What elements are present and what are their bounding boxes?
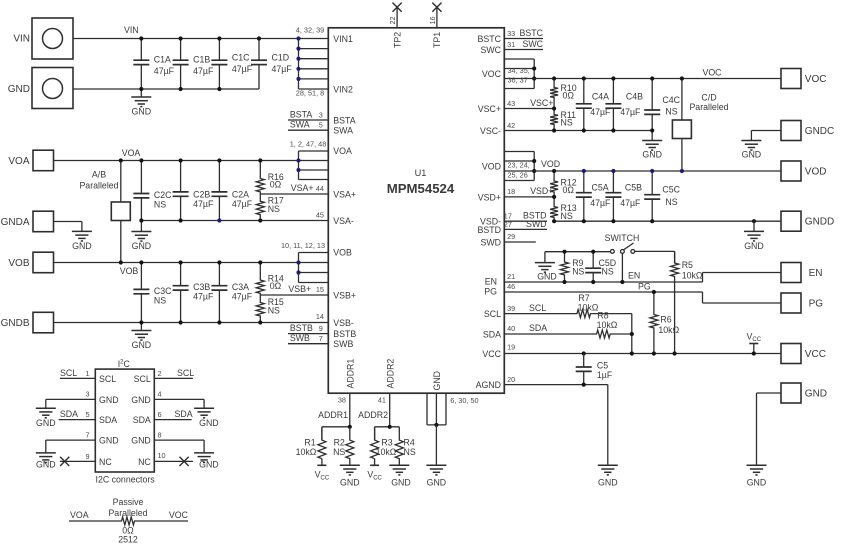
svg-text:16: 16	[428, 16, 437, 24]
svg-text:VOB: VOB	[333, 248, 352, 258]
svg-text:8: 8	[158, 431, 162, 440]
svg-text:C4B: C4B	[626, 92, 643, 102]
svg-text:GND: GND	[132, 340, 152, 350]
svg-text:C5: C5	[597, 360, 608, 370]
svg-text:GND: GND	[747, 478, 767, 488]
svg-text:A/B: A/B	[92, 169, 106, 179]
svg-text:GND: GND	[199, 460, 219, 470]
svg-text:1: 1	[85, 369, 89, 378]
svg-text:GND: GND	[199, 418, 219, 428]
svg-text:27: 27	[504, 220, 512, 229]
svg-text:GND: GND	[99, 436, 119, 446]
svg-text:GND: GND	[432, 371, 442, 391]
svg-text:1, 2, 47, 48: 1, 2, 47, 48	[290, 139, 327, 148]
svg-text:VSC+: VSC+	[478, 104, 501, 114]
svg-text:SDA: SDA	[99, 415, 117, 425]
svg-text:SCL: SCL	[529, 303, 546, 313]
svg-text:VSA+: VSA+	[291, 183, 314, 193]
svg-text:38: 38	[338, 396, 346, 405]
svg-text:ADDR2: ADDR2	[358, 410, 388, 420]
svg-text:47µF: 47µF	[232, 199, 253, 209]
svg-text:ADDR2: ADDR2	[386, 359, 396, 389]
svg-text:VOC: VOC	[702, 67, 722, 77]
svg-text:PG: PG	[809, 298, 824, 309]
svg-text:VSA+: VSA+	[333, 189, 356, 199]
svg-text:VSB-: VSB-	[333, 318, 354, 328]
svg-text:10kΩ: 10kΩ	[376, 447, 397, 457]
svg-text:SWC: SWC	[480, 45, 501, 55]
svg-text:33: 33	[507, 29, 515, 38]
svg-text:10, 11, 12, 13: 10, 11, 12, 13	[281, 241, 325, 250]
svg-text:9: 9	[85, 452, 89, 461]
svg-text:TP1: TP1	[432, 32, 442, 48]
svg-text:C3C: C3C	[154, 286, 172, 296]
svg-text:28, 51, 8: 28, 51, 8	[296, 89, 324, 98]
svg-text:47µF: 47µF	[193, 292, 214, 302]
svg-text:29: 29	[507, 232, 515, 241]
svg-text:PG: PG	[638, 281, 651, 291]
svg-text:BSTC: BSTC	[520, 28, 544, 38]
svg-text:VSC-: VSC-	[480, 126, 501, 136]
svg-text:47µF: 47µF	[620, 198, 641, 208]
svg-text:EN: EN	[809, 268, 823, 279]
svg-text:VCC: VCC	[482, 349, 501, 359]
svg-text:47µF: 47µF	[590, 198, 611, 208]
svg-text:VOC: VOC	[805, 74, 827, 85]
svg-text:BSTB: BSTB	[290, 323, 313, 333]
svg-text:VSC+: VSC+	[530, 98, 553, 108]
svg-text:SCL: SCL	[99, 374, 116, 384]
svg-text:C1C: C1C	[232, 52, 250, 62]
svg-text:47µF: 47µF	[154, 66, 175, 76]
svg-text:I2C connectors: I2C connectors	[96, 474, 156, 484]
svg-text:GND: GND	[99, 395, 119, 405]
svg-text:GND: GND	[36, 460, 56, 470]
svg-text:45: 45	[316, 211, 324, 220]
svg-text:EN: EN	[628, 270, 640, 280]
svg-text:GND: GND	[132, 241, 152, 251]
svg-text:GNDD: GNDD	[805, 217, 834, 228]
svg-text:C3B: C3B	[193, 282, 210, 292]
svg-text:1µF: 1µF	[597, 370, 613, 380]
svg-text:NS: NS	[154, 199, 166, 209]
svg-text:GND: GND	[744, 241, 764, 251]
svg-text:VIN: VIN	[124, 25, 139, 35]
svg-text:VOB: VOB	[8, 258, 29, 269]
svg-text:47µF: 47µF	[620, 107, 641, 117]
svg-text:GND: GND	[805, 388, 827, 399]
svg-text:TP2: TP2	[392, 32, 402, 48]
svg-text:BSTA: BSTA	[290, 109, 312, 119]
svg-text:NS: NS	[333, 447, 345, 457]
svg-text:GND: GND	[8, 84, 30, 95]
svg-text:SCL: SCL	[484, 309, 501, 319]
svg-text:NC: NC	[99, 457, 112, 467]
svg-text:NS: NS	[404, 447, 416, 457]
svg-text:47µF: 47µF	[272, 64, 293, 74]
svg-text:19: 19	[507, 343, 515, 352]
svg-text:18: 18	[507, 187, 515, 196]
svg-text:R6: R6	[660, 314, 671, 324]
svg-text:15: 15	[316, 285, 324, 294]
svg-text:GND: GND	[132, 107, 152, 117]
svg-text:20: 20	[507, 375, 515, 384]
svg-text:NS: NS	[561, 118, 573, 128]
svg-text:VOD: VOD	[482, 161, 501, 171]
svg-text:34, 35,: 34, 35,	[508, 66, 530, 75]
svg-text:GNDC: GNDC	[805, 126, 834, 137]
svg-text:10: 10	[158, 451, 166, 460]
svg-text:SCL: SCL	[60, 368, 77, 378]
svg-text:C2C: C2C	[154, 190, 172, 200]
svg-text:3: 3	[319, 110, 323, 119]
svg-text:5: 5	[85, 410, 89, 419]
svg-text:7: 7	[319, 334, 323, 343]
svg-text:21: 21	[507, 272, 515, 281]
svg-text:BSTB: BSTB	[333, 329, 356, 339]
svg-text:VOA: VOA	[70, 510, 89, 520]
svg-text:MPM54524: MPM54524	[387, 181, 455, 196]
svg-text:R5: R5	[682, 260, 693, 270]
svg-text:EN: EN	[485, 276, 497, 286]
svg-text:VIN: VIN	[13, 34, 30, 45]
svg-text:C4C: C4C	[662, 95, 680, 105]
svg-text:10kΩ: 10kΩ	[597, 320, 618, 330]
svg-text:C/D: C/D	[701, 93, 716, 103]
svg-text:47µF: 47µF	[193, 199, 214, 209]
svg-text:SDA: SDA	[483, 329, 501, 339]
svg-text:AGND: AGND	[476, 380, 501, 390]
svg-text:2: 2	[158, 369, 162, 378]
svg-text:VOD: VOD	[541, 159, 560, 169]
svg-text:NS: NS	[154, 295, 166, 305]
svg-text:C5B: C5B	[625, 183, 642, 193]
svg-text:14: 14	[316, 312, 324, 321]
svg-text:VSA-: VSA-	[333, 216, 354, 226]
svg-text:NS: NS	[665, 197, 677, 207]
svg-text:ADDR1: ADDR1	[346, 359, 356, 389]
svg-text:VOC: VOC	[482, 69, 502, 79]
svg-text:ADDR1: ADDR1	[318, 410, 348, 420]
svg-text:6, 30, 50: 6, 30, 50	[450, 396, 478, 405]
svg-text:10kΩ: 10kΩ	[682, 270, 703, 280]
svg-text:GND: GND	[131, 395, 151, 405]
svg-text:7: 7	[85, 431, 89, 440]
svg-text:23, 24,: 23, 24,	[508, 161, 530, 170]
svg-text:5: 5	[319, 121, 323, 130]
svg-text:42: 42	[507, 121, 515, 130]
svg-text:Paralleled: Paralleled	[79, 180, 118, 190]
svg-text:SWB: SWB	[290, 333, 310, 343]
svg-text:10kΩ: 10kΩ	[578, 302, 599, 312]
svg-text:44: 44	[316, 184, 324, 193]
svg-text:GNDA: GNDA	[1, 217, 30, 228]
svg-text:GND: GND	[598, 478, 618, 488]
svg-text:NS: NS	[572, 267, 584, 277]
svg-text:C5C: C5C	[662, 185, 680, 195]
svg-text:0Ω: 0Ω	[270, 179, 282, 189]
svg-text:C1B: C1B	[193, 55, 210, 65]
svg-text:C1D: C1D	[272, 52, 290, 62]
svg-text:Paralleled: Paralleled	[689, 102, 728, 112]
svg-text:25, 26: 25, 26	[508, 170, 528, 179]
svg-text:VOD: VOD	[805, 166, 827, 177]
svg-text:C1A: C1A	[154, 55, 171, 65]
svg-text:GND: GND	[427, 478, 447, 488]
svg-text:VSD+: VSD+	[478, 192, 501, 202]
svg-text:47µF: 47µF	[193, 66, 214, 76]
svg-text:0Ω: 0Ω	[563, 185, 575, 195]
svg-text:10kΩ: 10kΩ	[658, 325, 679, 335]
svg-text:SCL: SCL	[134, 374, 151, 384]
svg-text:4, 32, 39: 4, 32, 39	[296, 26, 324, 35]
svg-text:SCL: SCL	[177, 368, 194, 378]
svg-text:VOA: VOA	[8, 156, 29, 167]
svg-text:VIN1: VIN1	[333, 34, 353, 44]
svg-text:VCC: VCC	[805, 349, 826, 360]
svg-text:NS: NS	[268, 305, 280, 315]
svg-text:GND: GND	[36, 418, 56, 428]
svg-text:31: 31	[507, 40, 515, 49]
svg-text:SWD: SWD	[526, 219, 547, 229]
svg-text:VSB+: VSB+	[288, 284, 311, 294]
svg-text:Passive: Passive	[113, 497, 144, 507]
svg-text:GNDB: GNDB	[1, 318, 30, 329]
svg-text:36, 37: 36, 37	[508, 76, 528, 85]
svg-text:10kΩ: 10kΩ	[296, 447, 317, 457]
svg-text:GND: GND	[340, 478, 360, 488]
svg-text:Paralleled: Paralleled	[108, 508, 147, 518]
svg-text:VOA: VOA	[122, 148, 141, 158]
svg-text:GND: GND	[72, 241, 92, 251]
svg-text:GND: GND	[537, 271, 557, 281]
svg-text:43: 43	[507, 99, 515, 108]
svg-text:VOB: VOB	[120, 266, 139, 276]
svg-text:GND: GND	[391, 478, 411, 488]
svg-text:SWA: SWA	[290, 120, 310, 130]
svg-text:NS: NS	[561, 211, 573, 221]
svg-text:C3A: C3A	[232, 282, 249, 292]
svg-text:NS: NS	[268, 204, 280, 214]
svg-text:GND: GND	[642, 149, 662, 159]
svg-text:4: 4	[158, 390, 162, 399]
svg-text:47µF: 47µF	[232, 64, 253, 74]
svg-text:VSD+: VSD+	[530, 186, 553, 196]
svg-text:SWITCH: SWITCH	[605, 233, 640, 243]
svg-text:GND: GND	[742, 149, 762, 159]
svg-text:SWA: SWA	[333, 126, 353, 136]
svg-text:2512: 2512	[118, 534, 138, 544]
svg-text:BSTC: BSTC	[478, 34, 502, 44]
svg-text:0Ω: 0Ω	[563, 91, 575, 101]
svg-text:39: 39	[507, 304, 515, 313]
svg-text:SDA: SDA	[529, 323, 547, 333]
svg-text:U1: U1	[415, 168, 427, 178]
svg-text:46: 46	[507, 282, 515, 291]
svg-text:22: 22	[388, 16, 397, 24]
svg-text:SWB: SWB	[333, 339, 353, 349]
svg-text:SDA: SDA	[133, 415, 151, 425]
svg-text:NS: NS	[602, 267, 614, 277]
svg-text:6: 6	[158, 410, 162, 419]
svg-text:SDA: SDA	[60, 409, 78, 419]
svg-text:VSB+: VSB+	[333, 290, 356, 300]
svg-text:C4A: C4A	[592, 92, 609, 102]
svg-text:9: 9	[319, 324, 323, 333]
svg-text:BSTD: BSTD	[478, 225, 501, 235]
svg-text:0Ω: 0Ω	[270, 281, 282, 291]
svg-text:41: 41	[378, 396, 386, 405]
svg-text:VOC: VOC	[169, 510, 189, 520]
svg-text:BSTA: BSTA	[333, 115, 355, 125]
svg-text:GND: GND	[131, 436, 151, 446]
svg-text:I2C: I2C	[118, 359, 131, 369]
svg-text:SWC: SWC	[522, 39, 543, 49]
svg-text:47µF: 47µF	[232, 292, 253, 302]
svg-text:40: 40	[507, 324, 515, 333]
svg-text:NC: NC	[138, 457, 151, 467]
svg-text:3: 3	[85, 390, 89, 399]
svg-text:VIN2: VIN2	[333, 84, 353, 94]
svg-text:PG: PG	[484, 287, 497, 297]
svg-text:SDA: SDA	[175, 409, 193, 419]
svg-text:SWD: SWD	[480, 237, 501, 247]
svg-text:VOA: VOA	[333, 146, 352, 156]
svg-text:C5A: C5A	[592, 183, 609, 193]
svg-text:NS: NS	[665, 107, 677, 117]
